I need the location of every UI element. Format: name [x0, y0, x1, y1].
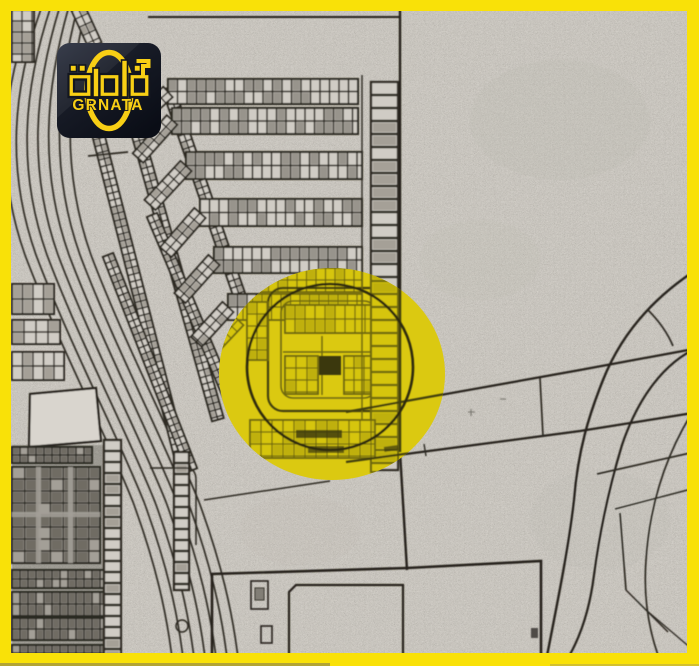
svg-text:GRNATA: GRNATA [72, 97, 143, 114]
